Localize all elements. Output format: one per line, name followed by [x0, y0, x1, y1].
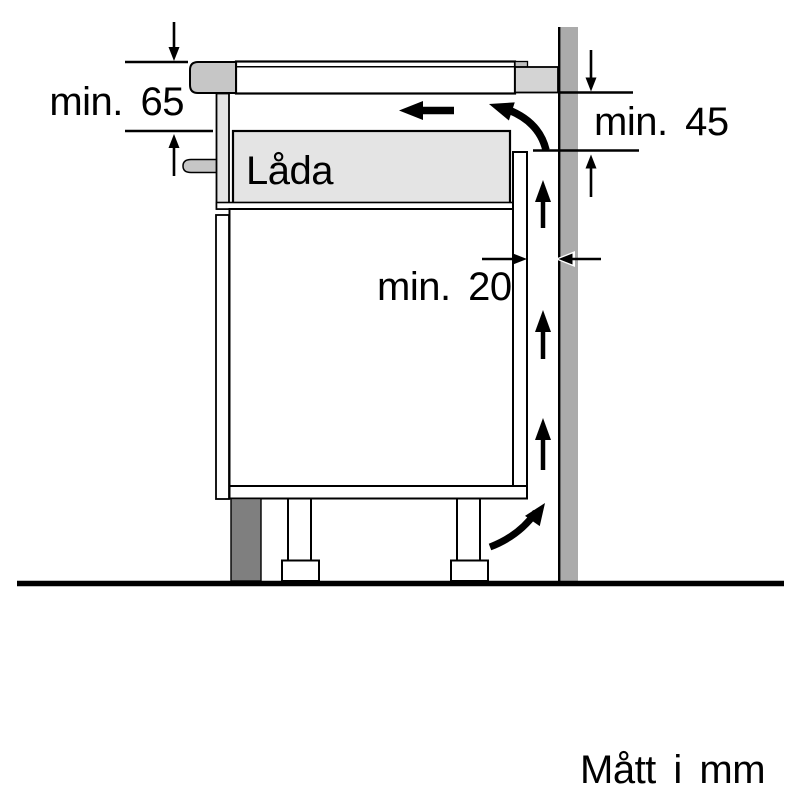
cabinet [216, 152, 527, 581]
cabinet-door-front [216, 215, 229, 499]
drawer-assembly: Låda [183, 94, 513, 210]
hob-front-trim [190, 62, 236, 93]
cabinet-leg-front [288, 499, 311, 561]
cabinet-back-panel [513, 152, 527, 486]
drawer-label: Låda [246, 149, 334, 193]
cabinet-bottom-board [230, 486, 528, 499]
airflow-top-curve-arrow-icon [486, 95, 515, 120]
min65-down-arrow-icon [169, 47, 180, 61]
wall-body [558, 27, 578, 581]
cabinet-leg-back [457, 499, 480, 561]
min45-label: min. 45 [594, 100, 729, 144]
min20-label: min. 20 [377, 265, 512, 309]
worktop-end-block [515, 67, 558, 93]
drawer-front-panel [217, 94, 230, 210]
min65-label: min. 65 [49, 80, 184, 124]
airflow-left-arrow-icon [399, 101, 423, 120]
wall [558, 27, 578, 581]
cabinet-foot-front [282, 561, 319, 582]
min45-down-arrow-icon [586, 78, 597, 92]
cabinet-interior [230, 209, 514, 486]
min45-up-arrow-icon [586, 155, 597, 169]
dimension-min65: min. 65 [49, 22, 213, 176]
diagram-canvas: Låda min. 65 min. 45 [0, 0, 800, 800]
airflow-top-curve-shaft [506, 109, 546, 150]
min65-up-arrow-icon [169, 134, 180, 148]
worktop-hob-assembly [190, 62, 558, 94]
airflow-up-arrow-3-icon [535, 418, 551, 440]
plinth-board [231, 499, 261, 582]
cabinet-foot-back [451, 561, 488, 582]
airflow-up-arrow-2-icon [535, 310, 551, 332]
airflow-up-arrow-1-icon [535, 180, 551, 202]
drawer-handle [183, 160, 218, 173]
units-note: Mått i mm [580, 748, 765, 792]
installation-diagram: Låda min. 65 min. 45 [0, 0, 800, 800]
